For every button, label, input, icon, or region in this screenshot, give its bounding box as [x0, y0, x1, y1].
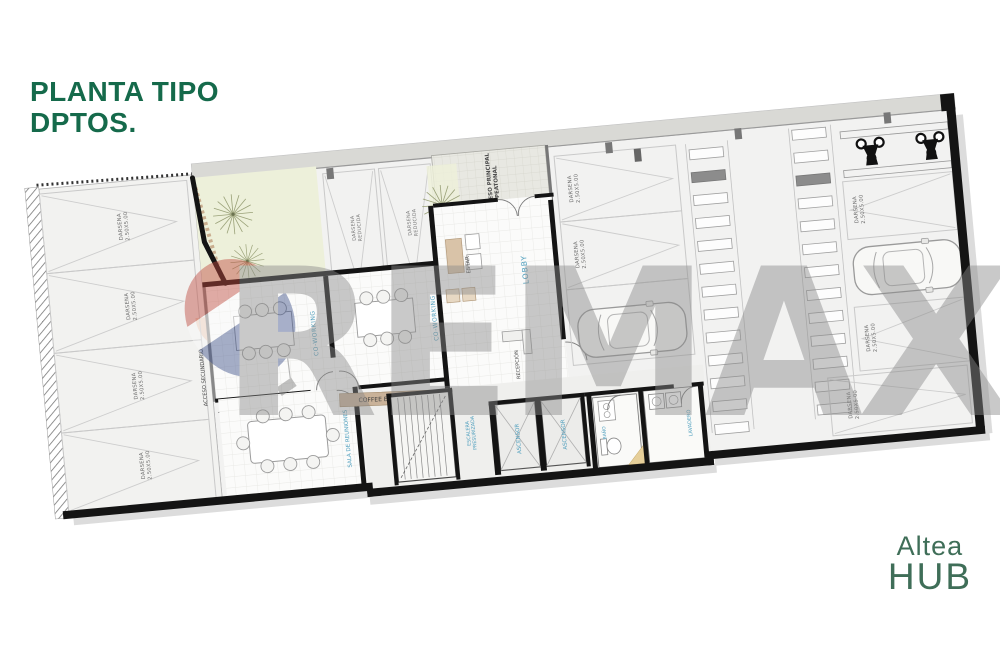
page-title-line1: PLANTA TIPO: [30, 76, 219, 107]
brand-name2: HUB: [888, 558, 972, 595]
floorplan-page: DARSENA 2.50X5.00 DARSENA 2.50X5.00 DARS…: [0, 0, 1000, 667]
page-title-line2: DPTOS.: [30, 107, 219, 138]
remax-watermark: REMAX: [162, 226, 1000, 464]
page-title: PLANTA TIPO DPTOS.: [30, 76, 219, 139]
remax-watermark-text: REMAX: [221, 226, 1000, 464]
altea-hub-logo: Altea HUB: [888, 533, 972, 595]
